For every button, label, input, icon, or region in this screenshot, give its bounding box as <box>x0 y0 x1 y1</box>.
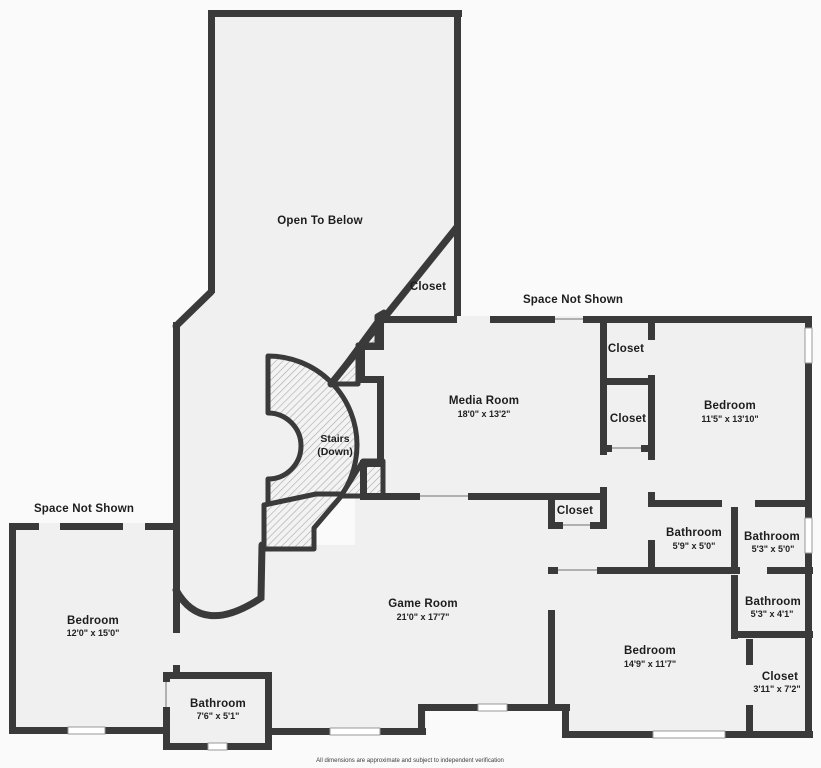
floor-fill <box>9 13 812 750</box>
floor-plan: Open To Below Closet Space Not Shown Med… <box>0 0 821 768</box>
disclaimer-text: All dimensions are approximate and subje… <box>316 758 504 764</box>
floor-plan-drawing <box>0 0 821 768</box>
